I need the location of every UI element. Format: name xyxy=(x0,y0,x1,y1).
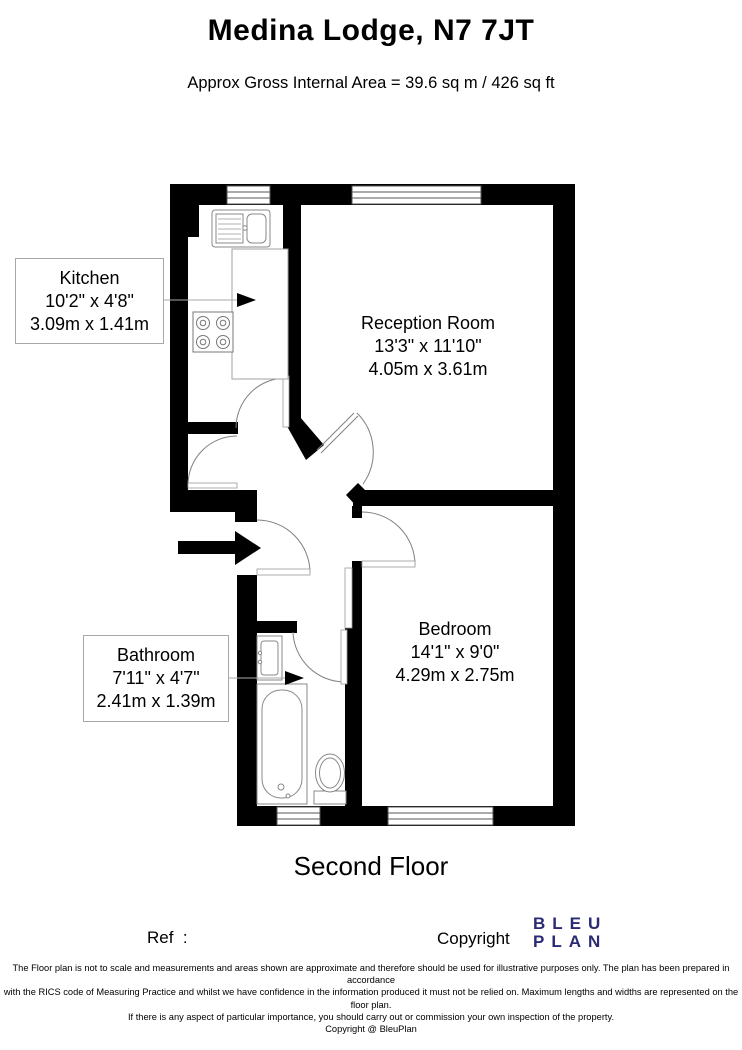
kitchen-bottom-wall xyxy=(188,422,238,434)
toilet xyxy=(314,754,346,804)
bedroom-label: Bedroom 14'1" x 9'0" 4.29m x 2.75m xyxy=(355,618,555,687)
bedroom-wall-recess xyxy=(345,568,352,628)
bedroom-window xyxy=(388,807,493,825)
room-size-metric: 2.41m x 1.39m xyxy=(84,690,228,713)
entrance-arrow-icon xyxy=(178,531,261,565)
floor-plan-drawing xyxy=(0,0,742,1050)
bathroom-window xyxy=(277,807,320,825)
copyright-label: Copyright xyxy=(437,929,510,949)
disclaimer-line: The Floor plan is not to scale and measu… xyxy=(0,962,742,986)
room-size-imperial: 10'2" x 4'8" xyxy=(16,290,163,313)
counter xyxy=(232,249,288,379)
kitchen-window xyxy=(227,186,270,204)
reception-room-label: Reception Room 13'3" x 11'10" 4.05m x 3.… xyxy=(328,312,528,381)
disclaimer-line: If there is any aspect of particular imp… xyxy=(0,1011,742,1023)
bathroom-label-box: Bathroom 7'11" x 4'7" 2.41m x 1.39m xyxy=(83,635,229,722)
room-name: Bathroom xyxy=(84,644,228,667)
room-size-metric: 4.29m x 2.75m xyxy=(355,664,555,687)
floor-label: Second Floor xyxy=(0,851,742,882)
hall-left-wall xyxy=(237,575,257,806)
room-name: Bedroom xyxy=(355,618,555,641)
bathroom-sink xyxy=(257,636,282,680)
kitchen-label-box: Kitchen 10'2" x 4'8" 3.09m x 1.41m xyxy=(15,258,164,344)
room-size-imperial: 14'1" x 9'0" xyxy=(355,641,555,664)
entrance-door xyxy=(257,520,310,575)
room-size-metric: 3.09m x 1.41m xyxy=(16,313,163,336)
walls xyxy=(170,184,575,826)
bathtub xyxy=(257,684,307,804)
kitchen-door xyxy=(236,376,289,428)
right-wall xyxy=(553,184,575,826)
logo-line-2: PLAN xyxy=(533,933,607,951)
stove xyxy=(193,312,233,352)
left-wall xyxy=(170,184,188,512)
bathroom-fixtures xyxy=(257,636,346,804)
bathroom-door xyxy=(293,630,347,684)
reception-bedroom-wall xyxy=(353,490,553,506)
disclaimer-line: Copyright @ BleuPlan xyxy=(0,1023,742,1035)
bedroom-wall-upper xyxy=(352,506,362,518)
room-size-imperial: 13'3" x 11'10" xyxy=(328,335,528,358)
room-name: Reception Room xyxy=(328,312,528,335)
left-wall-notch xyxy=(188,205,199,237)
kitchen-sink xyxy=(212,210,270,247)
disclaimer-line: with the RICS code of Measuring Practice… xyxy=(0,986,742,1010)
bleuplan-logo: BLEU PLAN xyxy=(533,915,607,951)
entrance-top-wall xyxy=(170,490,257,512)
floor-plan-page: Medina Lodge, N7 7JT Approx Gross Intern… xyxy=(0,0,742,1050)
disclaimer: The Floor plan is not to scale and measu… xyxy=(0,962,742,1035)
bathroom-top-wall xyxy=(257,621,297,633)
entrance-stub-wall xyxy=(235,512,257,522)
logo-line-1: BLEU xyxy=(533,915,607,933)
bathroom-pointer-arrow-icon xyxy=(285,671,304,685)
room-size-metric: 4.05m x 3.61m xyxy=(328,358,528,381)
ref-label: Ref : xyxy=(147,928,188,948)
room-size-imperial: 7'11" x 4'7" xyxy=(84,667,228,690)
reception-window xyxy=(352,186,481,204)
bedroom-door xyxy=(362,512,415,567)
hall-lobby-door xyxy=(188,436,237,488)
room-name: Kitchen xyxy=(16,267,163,290)
reception-door xyxy=(317,413,373,484)
